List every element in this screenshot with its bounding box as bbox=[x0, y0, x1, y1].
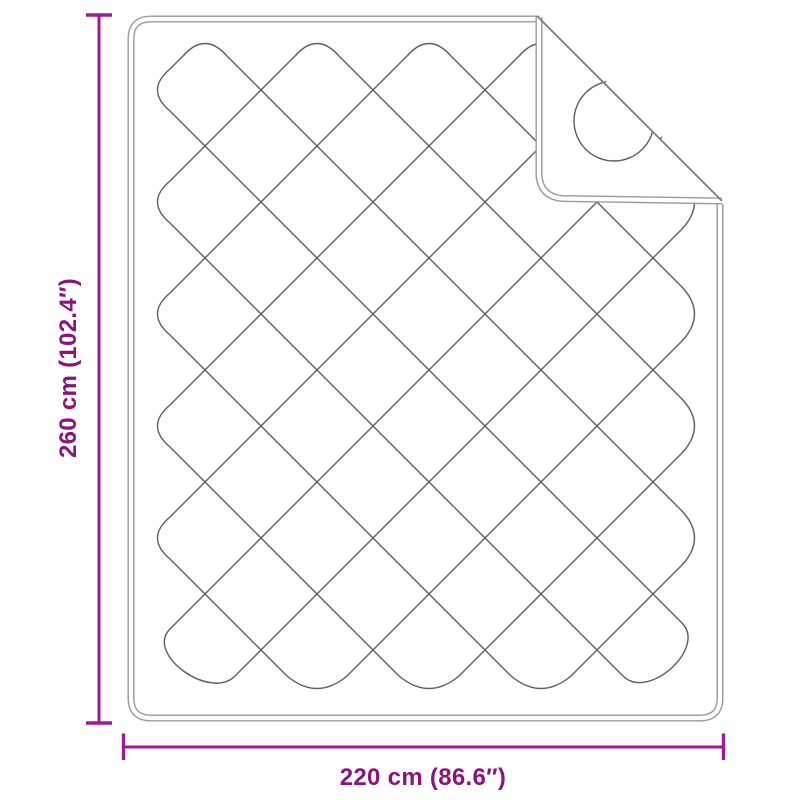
vertical-dimension-label: 260 cm (102.4″) bbox=[55, 278, 83, 458]
product-dimension-diagram: 260 cm (102.4″) 220 cm (86.6″) bbox=[0, 0, 800, 800]
fold-flap bbox=[537, 16, 722, 201]
blanket-diagram bbox=[0, 0, 800, 800]
horizontal-dimension-label: 220 cm (86.6″) bbox=[340, 764, 506, 792]
vertical-dimension-line bbox=[86, 15, 112, 723]
horizontal-dimension-line bbox=[124, 734, 724, 761]
